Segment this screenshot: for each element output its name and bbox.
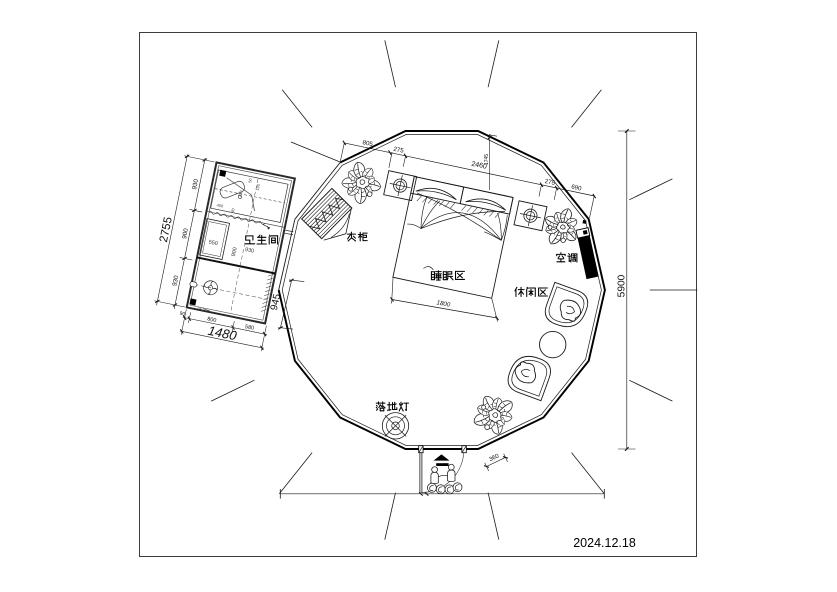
svg-text:2024.12.18: 2024.12.18 [573,536,636,550]
svg-text:1745: 1745 [484,154,490,165]
svg-text:5900: 5900 [617,274,628,297]
